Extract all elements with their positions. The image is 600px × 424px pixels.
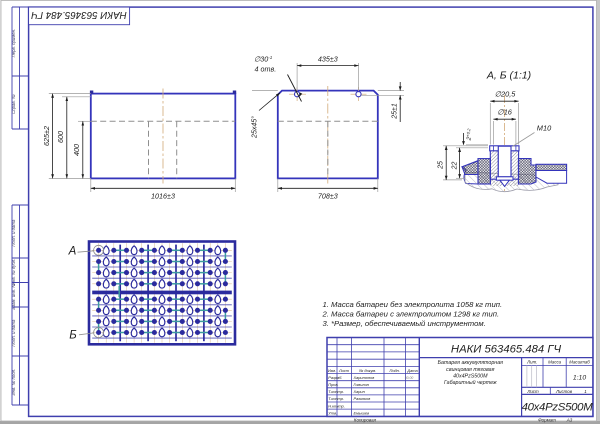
svg-text:Гомилин: Гомилин xyxy=(354,382,370,387)
svg-text:свинцовая тяговая: свинцовая тяговая xyxy=(446,367,494,373)
svg-text:1. Масса батареи без электроли: 1. Масса батареи без электролита 1058 кг… xyxy=(323,300,503,309)
svg-text:Утв.: Утв. xyxy=(328,410,337,415)
svg-text:∅16: ∅16 xyxy=(497,108,513,117)
svg-text:25х45°: 25х45° xyxy=(251,116,259,139)
svg-text:708±3: 708±3 xyxy=(318,191,338,200)
svg-text:22: 22 xyxy=(451,162,458,171)
svg-text:Лист: Лист xyxy=(338,368,350,373)
svg-text:№ докум.: № докум. xyxy=(359,368,376,373)
svg-text:НАКИ 563465.484 ГЧ: НАКИ 563465.484 ГЧ xyxy=(451,343,562,355)
svg-text:Взам. инв. №: Взам. инв. № xyxy=(11,283,16,310)
svg-text:Инв. № дубл.: Инв. № дубл. xyxy=(11,259,16,285)
svg-text:А3: А3 xyxy=(566,417,573,422)
svg-text:Габаритный чертеж: Габаритный чертеж xyxy=(444,379,497,386)
svg-text:Батарея аккумуляторная: Батарея аккумуляторная xyxy=(438,360,504,366)
svg-text:40x4PzS500M: 40x4PzS500M xyxy=(522,401,594,413)
svg-text:А: А xyxy=(68,246,77,258)
svg-text:Подп. и дата: Подп. и дата xyxy=(11,219,16,247)
svg-text:Емышев: Емышев xyxy=(354,410,370,415)
svg-text:400: 400 xyxy=(72,144,81,156)
svg-text:4 отв.: 4 отв. xyxy=(255,65,277,74)
svg-text:Копировал: Копировал xyxy=(354,417,377,422)
svg-text:Инв. № подл.: Инв. № подл. xyxy=(11,369,16,396)
svg-text:Т.контр.: Т.контр. xyxy=(328,396,344,401)
svg-text:Разраб.: Разраб. xyxy=(328,375,342,380)
svg-text:М10: М10 xyxy=(537,124,552,133)
svg-text:1016±3: 1016±3 xyxy=(151,191,175,200)
svg-text:Пров.: Пров. xyxy=(328,382,338,387)
svg-text:600: 600 xyxy=(56,131,65,143)
svg-text:Масса: Масса xyxy=(548,359,562,364)
svg-text:625±2: 625±2 xyxy=(42,126,51,146)
svg-text:25±1: 25±1 xyxy=(391,103,398,120)
svg-text:Т.контр.: Т.контр. xyxy=(328,389,344,394)
svg-text:435±3: 435±3 xyxy=(318,55,338,64)
svg-text:НАКИ 563465.484 ГЧ: НАКИ 563465.484 ГЧ xyxy=(31,9,127,20)
svg-text:Харин: Харин xyxy=(353,389,366,394)
svg-text:3. *Размер, обеспечиваемый инс: 3. *Размер, обеспечиваемый инструментом. xyxy=(323,319,486,328)
svg-text:∅20,5: ∅20,5 xyxy=(495,90,517,99)
svg-text:Подп.: Подп. xyxy=(390,368,400,373)
svg-text:2. Масса батареи с электролито: 2. Масса батареи с электролитом 1298 кг … xyxy=(322,310,500,319)
svg-text:40х4PzS500M: 40х4PzS500M xyxy=(453,373,488,379)
svg-text:Н.контр.: Н.контр. xyxy=(328,403,344,408)
svg-text:Масштаб: Масштаб xyxy=(569,359,590,364)
svg-text:Лит.: Лит. xyxy=(526,359,537,364)
svg-text:Разинков: Разинков xyxy=(354,396,371,401)
svg-text:Лист: Лист xyxy=(526,389,539,394)
svg-text:00.00: 00.00 xyxy=(405,376,414,380)
svg-text:Дата: Дата xyxy=(406,368,418,373)
svg-text:25: 25 xyxy=(438,161,445,170)
svg-text:Б: Б xyxy=(69,330,77,342)
svg-text:Харитонов: Харитонов xyxy=(353,375,375,380)
svg-text:Подп. и дата: Подп. и дата xyxy=(11,319,16,347)
svg-text:А, Б (1:1): А, Б (1:1) xyxy=(486,70,531,82)
svg-text:Изм.: Изм. xyxy=(328,368,336,373)
svg-text:1:10: 1:10 xyxy=(573,375,586,382)
svg-text:Листов: Листов xyxy=(555,389,573,394)
svg-text:Справ. №: Справ. № xyxy=(11,94,16,114)
svg-text:Формат: Формат xyxy=(538,417,556,422)
svg-text:Перв. примен.: Перв. примен. xyxy=(11,29,16,58)
